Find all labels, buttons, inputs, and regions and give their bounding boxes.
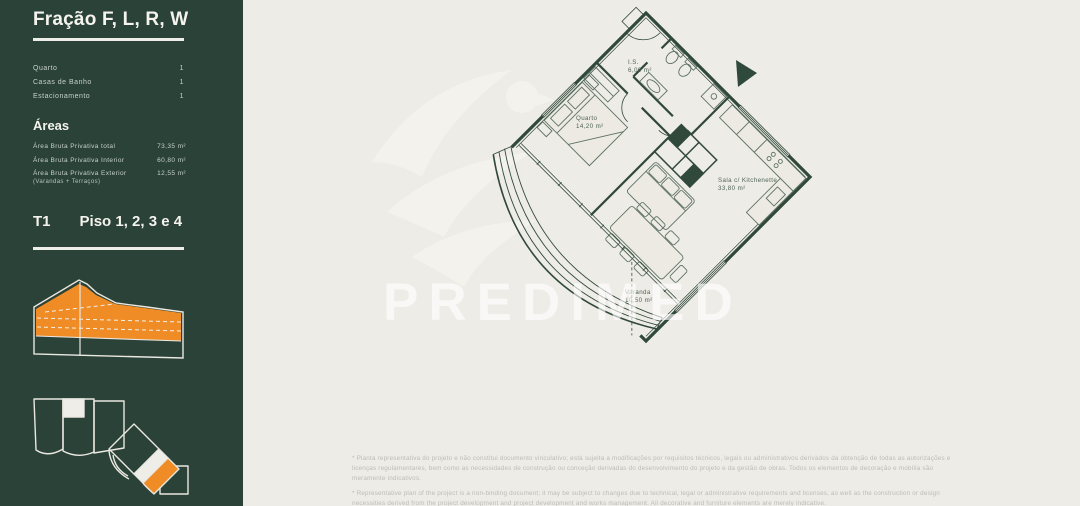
footnote-en: * Representative plan of the project is … (352, 489, 960, 506)
floor-plan: I.S. 6,00 m² Quarto 14,20 m² Sala c/ Kit… (0, 0, 1080, 506)
room-area-sala: 33,80 m² (718, 185, 746, 192)
room-label-quarto: Quarto (576, 115, 597, 122)
north-arrow-icon (736, 60, 757, 87)
footnote-pt: * Planta representativa do projeto e não… (352, 454, 960, 483)
bidet (676, 62, 693, 79)
brochure-page: Fração F, L, R, W Quarto 1 Casas de Banh… (0, 0, 1080, 506)
shower (701, 84, 726, 109)
footnotes: * Planta representativa do projeto e não… (352, 454, 960, 506)
toilet (664, 49, 681, 66)
room-label-is: I.S. (628, 59, 639, 66)
predimed-watermark: PREDIMED (383, 272, 743, 333)
duct-solid-2 (681, 164, 704, 187)
entry-landing (622, 7, 644, 29)
room-area-quarto: 14,20 m² (576, 123, 604, 130)
vanity (640, 72, 668, 100)
room-area-is: 6,00 m² (628, 67, 652, 74)
room-labels: I.S. 6,00 m² Quarto 14,20 m² Sala c/ Kit… (576, 59, 777, 304)
shower-drain (710, 92, 718, 100)
duct-solid-1 (668, 125, 691, 148)
room-label-sala: Sala c/ Kitchenette (718, 177, 777, 184)
